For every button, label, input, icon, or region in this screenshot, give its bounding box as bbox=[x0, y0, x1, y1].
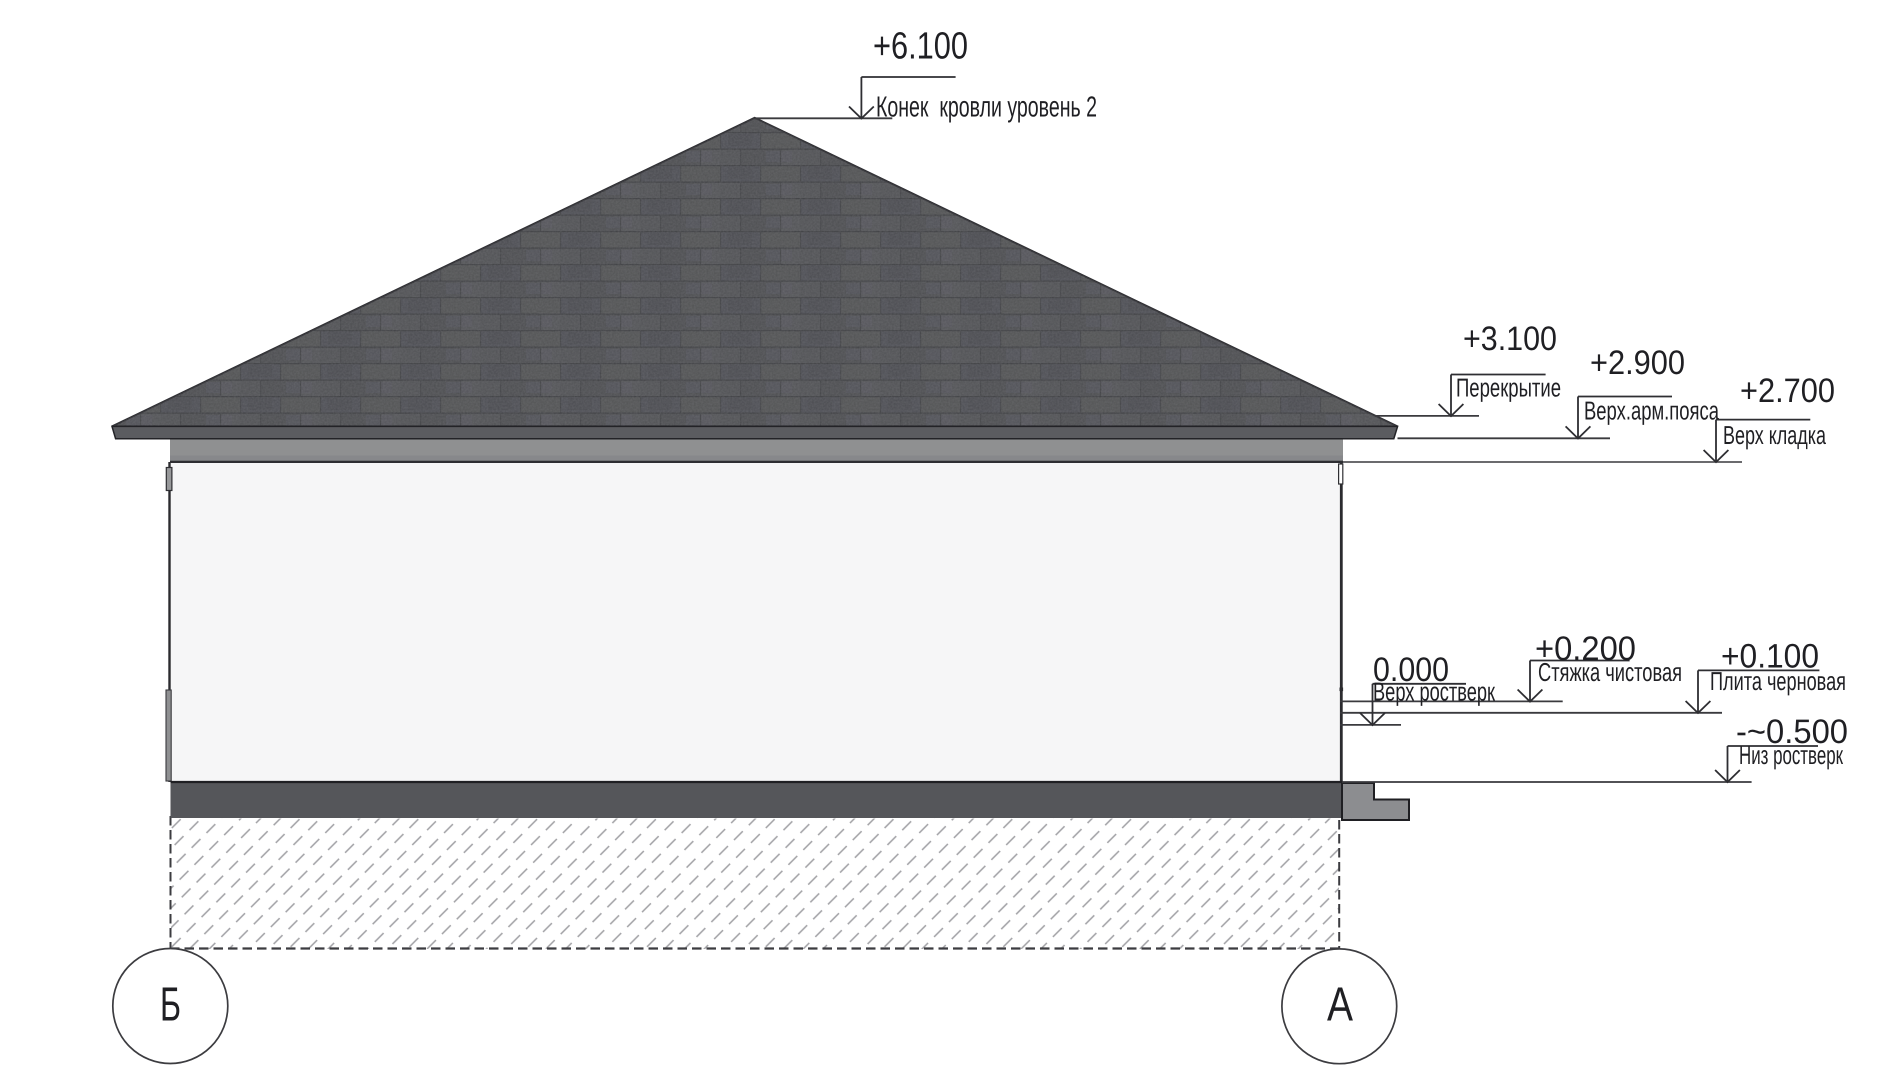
svg-text:Б: Б bbox=[160, 979, 181, 1032]
svg-text:+3.100: +3.100 bbox=[1463, 320, 1557, 358]
svg-text:Плита черновая: Плита черновая bbox=[1710, 666, 1846, 696]
svg-text:+2.700: +2.700 bbox=[1740, 372, 1835, 410]
svg-text:Стяжка чистовая: Стяжка чистовая bbox=[1538, 657, 1682, 687]
svg-text:+6.100: +6.100 bbox=[873, 26, 968, 68]
svg-text:Перекрытие: Перекрытие bbox=[1456, 373, 1561, 403]
svg-text:Верх ростверк: Верх ростверк bbox=[1373, 677, 1495, 707]
svg-text:А: А bbox=[1327, 979, 1353, 1032]
svg-text:Низ ростверк: Низ ростверк bbox=[1739, 740, 1843, 770]
svg-text:Конек кровли уровень 2: Конек кровли уровень 2 bbox=[876, 92, 1097, 124]
svg-text:Верх.арм.пояса: Верх.арм.пояса bbox=[1584, 396, 1719, 426]
svg-text:Верх кладка: Верх кладка bbox=[1723, 420, 1826, 450]
svg-text:+2.900: +2.900 bbox=[1590, 344, 1685, 382]
